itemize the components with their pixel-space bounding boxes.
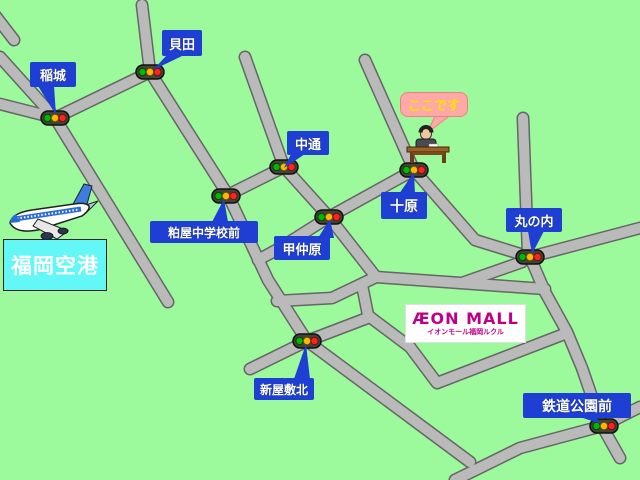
- traffic-light-icon: [136, 65, 164, 79]
- airport-label: 福岡空港: [3, 239, 107, 291]
- label-kasuya-chugakko-mae: 粕屋中学校前: [150, 221, 258, 243]
- traffic-light-icon: [516, 250, 544, 264]
- aeon-mall-logo-text: ÆON MALL: [412, 310, 519, 328]
- label-marunouchi: 丸の内: [506, 208, 562, 232]
- traffic-light-icon: [293, 334, 321, 348]
- label-nakadori: 中通: [287, 131, 329, 155]
- airplane-icon: [10, 184, 98, 240]
- label-kaida: 貝田: [162, 30, 202, 56]
- traffic-light-icon: [270, 160, 298, 174]
- aeon-mall-logo: ÆON MALL イオンモール福岡ルクル: [405, 304, 526, 343]
- label-tohara: 十原: [381, 192, 427, 219]
- reception-desk-icon: [407, 127, 449, 163]
- label-konakabaru: 甲仲原: [274, 236, 330, 260]
- map-canvas: 稲城 貝田 中通 粕屋中学校前 甲仲原 十原 丸の内 新屋敷北 鉄道公園前 ここ…: [0, 0, 640, 480]
- here-balloon: ここです: [400, 92, 468, 117]
- traffic-light-icon: [212, 189, 240, 203]
- aeon-mall-subtitle: イオンモール福岡ルクル: [427, 327, 504, 337]
- label-tetsudo-koen-mae: 鉄道公園前: [523, 393, 631, 418]
- label-inagi: 稲城: [30, 62, 76, 87]
- label-shin-yashiki-kita: 新屋敷北: [254, 378, 314, 400]
